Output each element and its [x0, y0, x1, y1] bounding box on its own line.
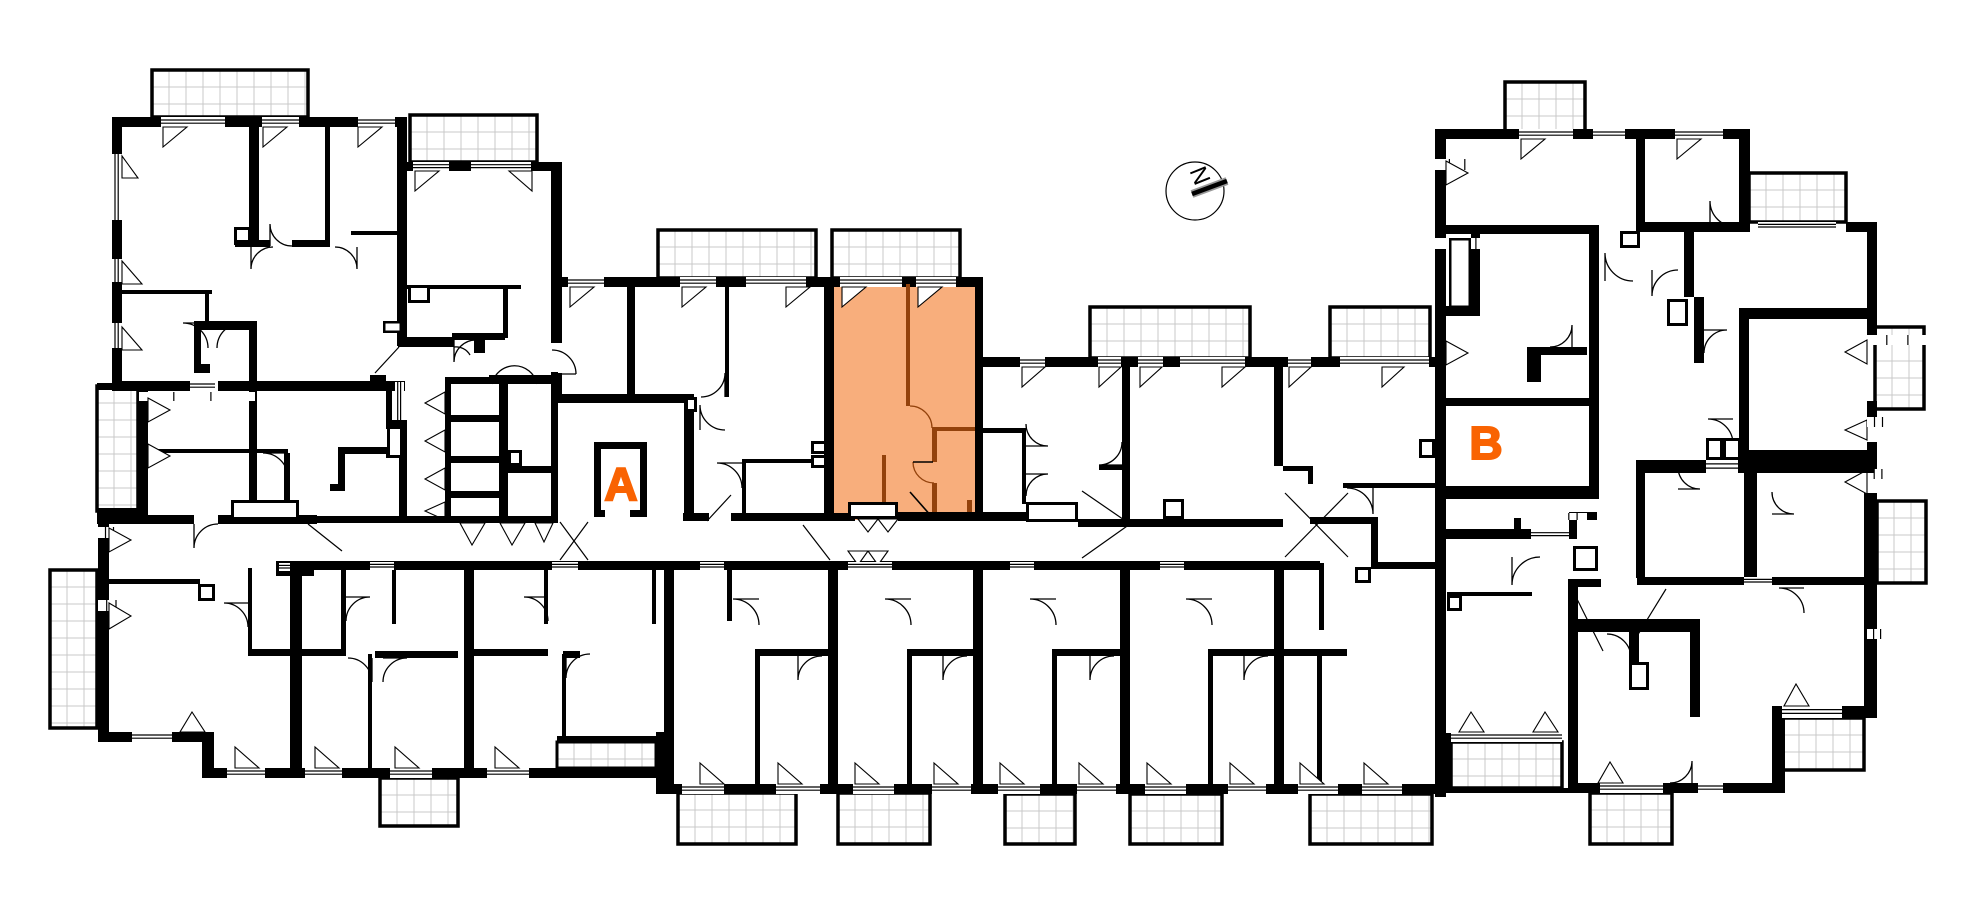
svg-text:A: A	[604, 458, 637, 510]
svg-text:B: B	[1469, 417, 1502, 469]
